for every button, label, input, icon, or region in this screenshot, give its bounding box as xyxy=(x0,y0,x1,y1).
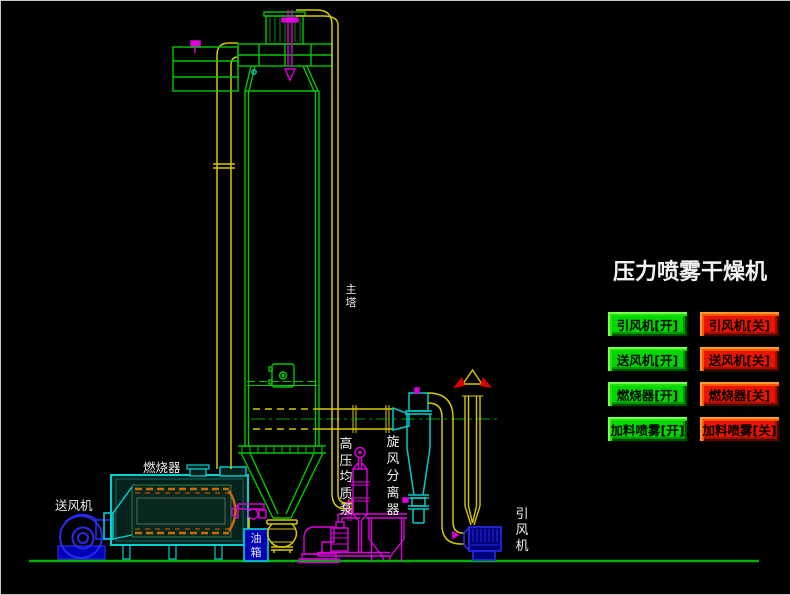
label-supply-fan: 送风机 xyxy=(55,495,93,514)
label-high-pressure-pump: 高压均质泵 xyxy=(339,437,353,520)
label-burner: 燃烧器 xyxy=(143,457,181,476)
label-main-tower: 主塔 xyxy=(345,283,357,309)
exhaust-arrow-icons xyxy=(453,377,492,388)
induced-fan-drawing xyxy=(464,527,501,560)
button-supply-fan-on[interactable]: 送风机[开] xyxy=(607,346,688,372)
button-burner-off[interactable]: 燃烧器[关] xyxy=(699,381,780,407)
spray-tower-drawing xyxy=(173,12,332,518)
feed-hopper-drawing xyxy=(366,514,407,561)
exhaust-stack-drawing xyxy=(453,370,492,525)
button-induced-fan-off[interactable]: 引风机[关] xyxy=(699,311,780,337)
exhaust-duct-drawing xyxy=(251,405,501,433)
button-burner-on[interactable]: 燃烧器[开] xyxy=(607,381,688,407)
page-title: 压力喷雾干燥机 xyxy=(613,254,783,286)
cyclone-outlet-pipe xyxy=(428,393,464,544)
button-feed-spray-on[interactable]: 加料喷雾[开] xyxy=(607,416,688,442)
label-oil-tank: 油箱 xyxy=(250,532,262,560)
hot-air-pipe-left xyxy=(191,41,238,469)
hmi-screen: 压力喷雾干燥机 主塔 燃烧器 送风机 高压均质泵 旋风分离器 油箱 引风机 引风… xyxy=(0,0,790,595)
button-feed-spray-off[interactable]: 加料喷雾[关] xyxy=(699,416,780,442)
button-supply-fan-off[interactable]: 送风机[关] xyxy=(699,346,780,372)
label-cyclone-separator: 旋风分离器 xyxy=(386,434,400,519)
label-induced-fan: 引风机 xyxy=(515,507,529,555)
burner-drawing xyxy=(104,465,248,559)
collection-pot-drawing xyxy=(267,520,297,553)
supply-fan-drawing xyxy=(58,514,111,559)
button-induced-fan-on[interactable]: 引风机[开] xyxy=(607,311,688,337)
